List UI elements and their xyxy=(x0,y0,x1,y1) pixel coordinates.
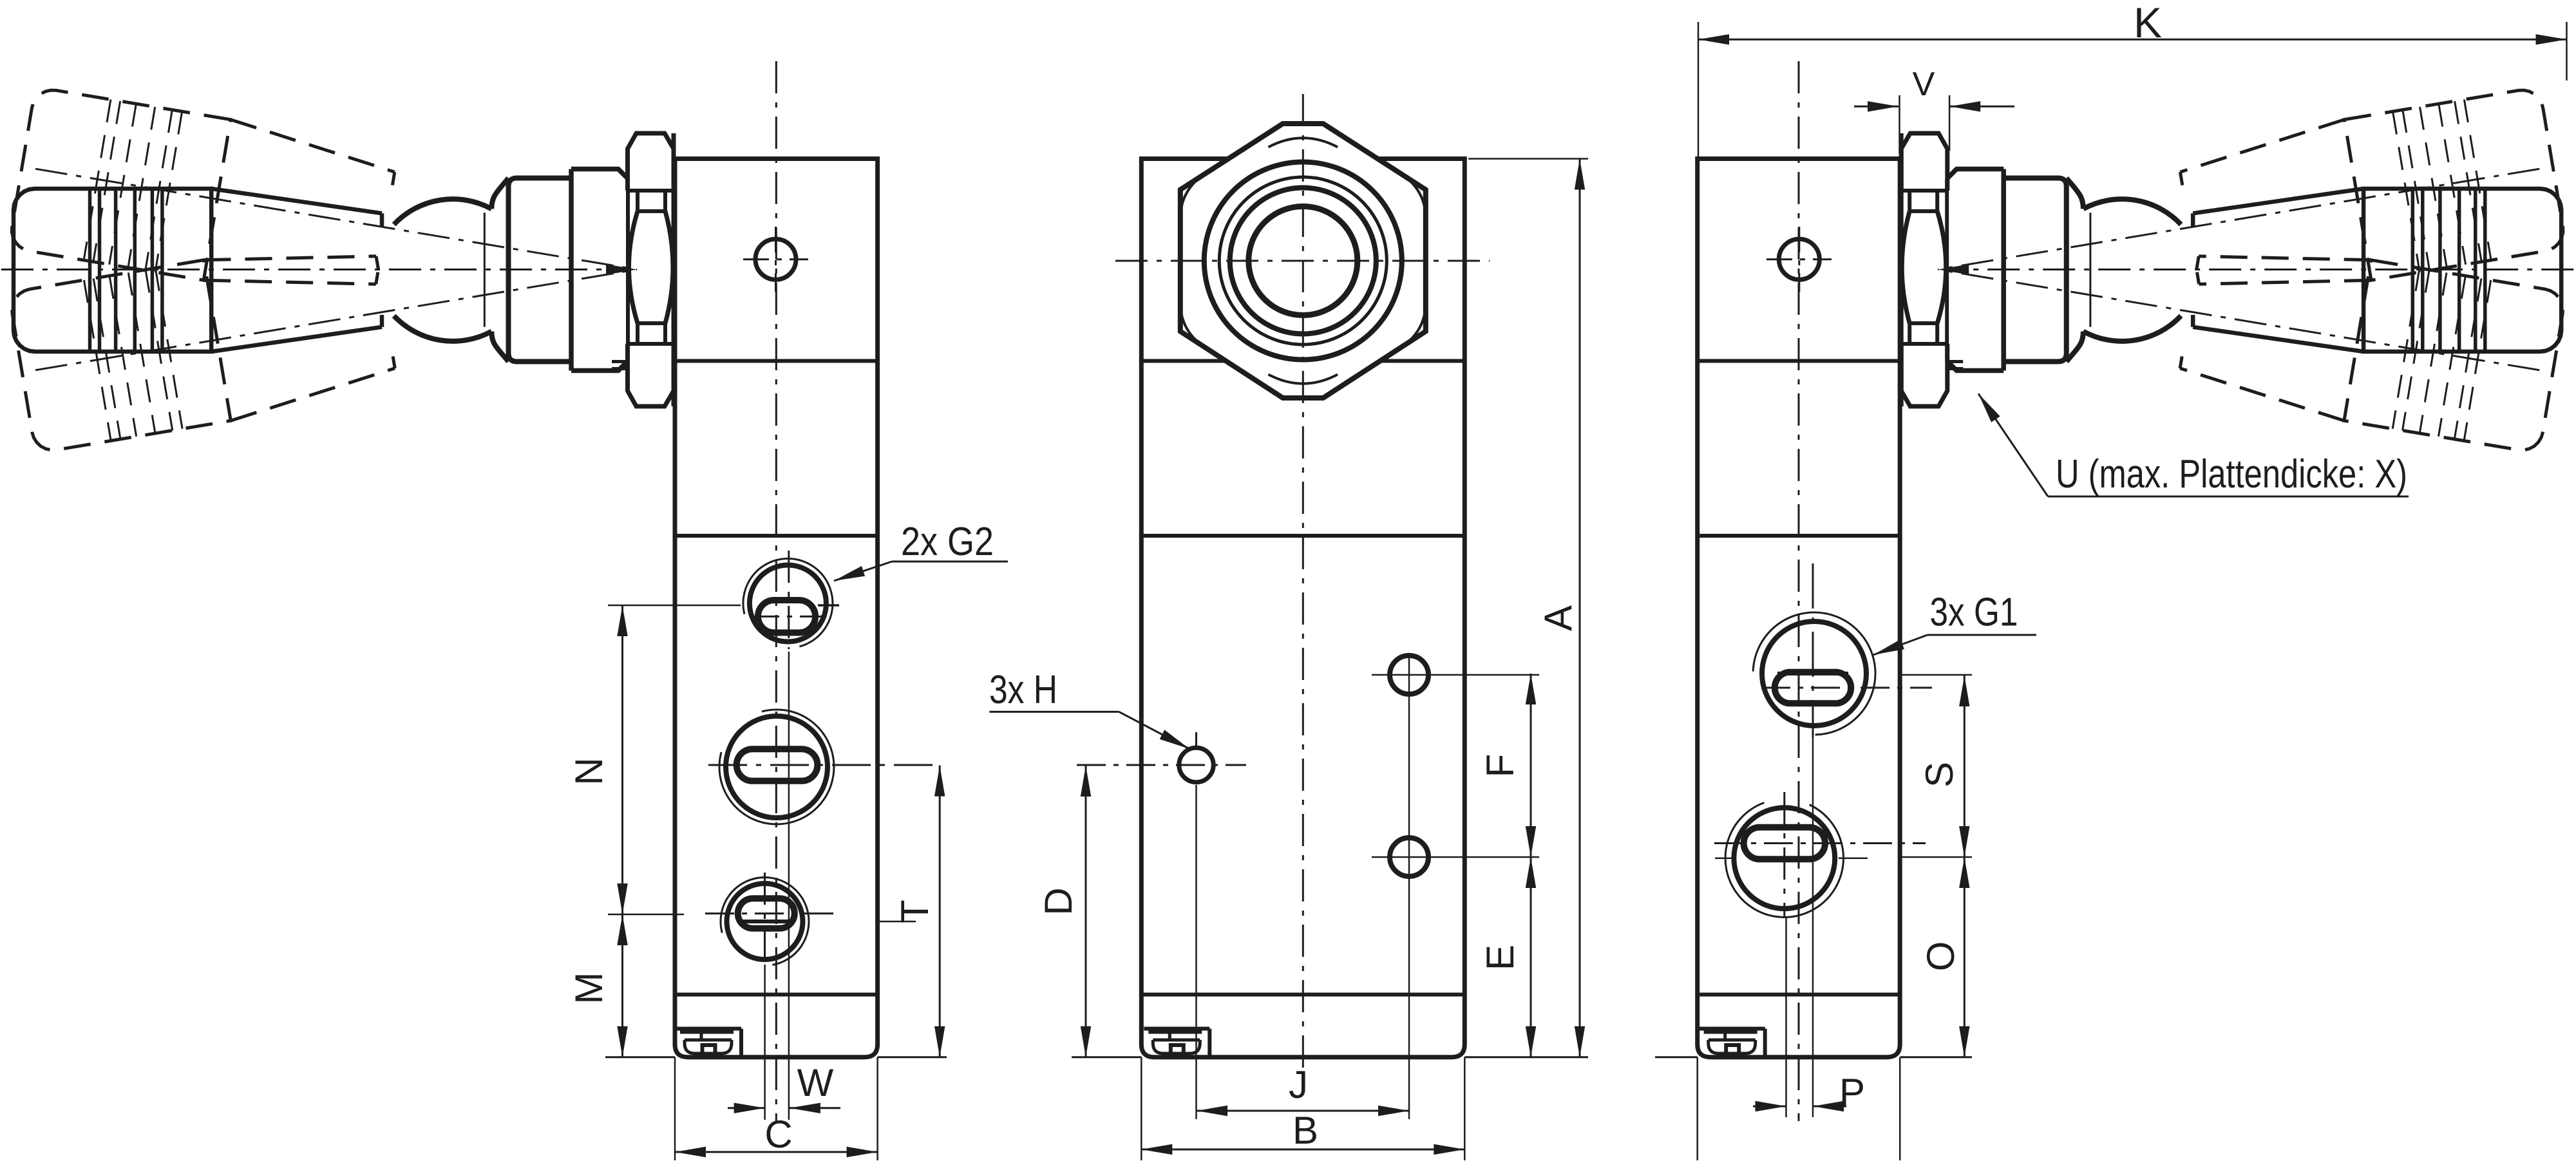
svg-text:B: B xyxy=(1293,1109,1318,1152)
svg-text:D: D xyxy=(1037,887,1080,915)
svg-text:M: M xyxy=(567,972,611,1005)
svg-text:J: J xyxy=(1289,1063,1308,1106)
svg-text:S: S xyxy=(1918,762,1961,788)
svg-text:T: T xyxy=(893,900,936,923)
svg-text:E: E xyxy=(1479,945,1522,970)
svg-text:K: K xyxy=(2134,0,2162,46)
svg-text:F: F xyxy=(1479,754,1522,778)
svg-text:A: A xyxy=(1537,605,1580,631)
svg-text:O: O xyxy=(1919,941,1962,972)
svg-text:2x G2: 2x G2 xyxy=(901,520,994,564)
svg-text:V: V xyxy=(1913,66,1935,103)
svg-text:3x G1: 3x G1 xyxy=(1930,590,2018,635)
svg-text:N: N xyxy=(567,757,611,785)
svg-text:P: P xyxy=(1839,1071,1865,1114)
svg-text:W: W xyxy=(797,1061,834,1104)
svg-text:3x H: 3x H xyxy=(989,668,1057,712)
svg-text:U (max. Plattendicke: X): U (max. Plattendicke: X) xyxy=(2056,452,2407,496)
svg-text:C: C xyxy=(764,1113,792,1156)
